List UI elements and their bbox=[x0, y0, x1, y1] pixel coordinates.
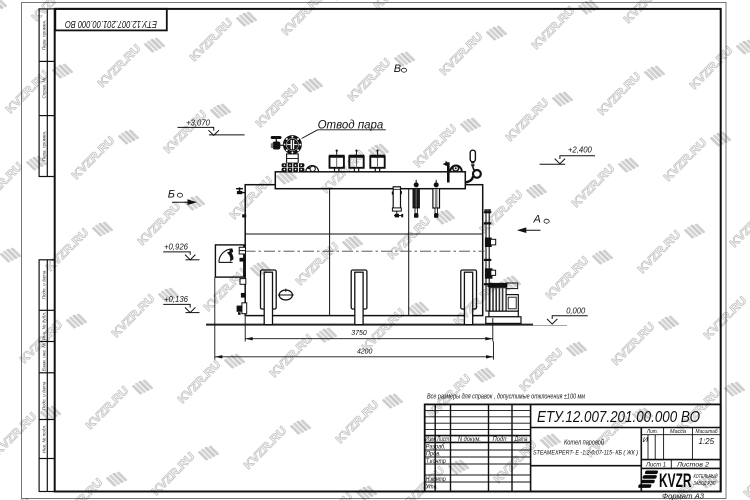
svg-text:В: В bbox=[394, 63, 401, 75]
svg-text:ЕТУ.12.007.201.00.000 ВО: ЕТУ.12.007.201.00.000 ВО bbox=[65, 18, 157, 29]
svg-text:Пров.: Пров. bbox=[426, 452, 441, 458]
svg-text:Лист 1: Лист 1 bbox=[645, 462, 666, 468]
svg-text:3750: 3750 bbox=[351, 328, 367, 337]
svg-text:+2,400: +2,400 bbox=[568, 145, 592, 155]
svg-text:1:25: 1:25 bbox=[699, 437, 715, 446]
svg-text:Масштаб: Масштаб bbox=[696, 429, 719, 435]
svg-text:Подп. и дата: Подп. и дата bbox=[42, 381, 47, 410]
svg-text:Подп: Подп bbox=[493, 437, 508, 443]
svg-text:Б: Б bbox=[168, 189, 175, 201]
svg-text:Перв. примен.: Перв. примен. bbox=[42, 131, 47, 162]
svg-text:Подп. и дата: Подп. и дата bbox=[42, 270, 47, 299]
svg-text:Инв. № подл.: Инв. № подл. bbox=[42, 425, 47, 454]
svg-text:Листов 2: Листов 2 bbox=[676, 462, 710, 468]
svg-text:N докум.: N докум. bbox=[458, 437, 481, 443]
svg-text:Изм: Изм bbox=[425, 437, 435, 443]
svg-text:Перв. примен.: Перв. примен. bbox=[42, 20, 47, 51]
svg-text:Лист: Лист bbox=[436, 437, 449, 443]
svg-text:+0,926: +0,926 bbox=[164, 242, 188, 252]
svg-text:И: И bbox=[643, 435, 649, 444]
svg-text:Разраб.: Разраб. bbox=[426, 445, 446, 451]
svg-text:А: А bbox=[533, 214, 541, 226]
svg-text:Дата: Дата bbox=[514, 437, 528, 443]
svg-text:0,000: 0,000 bbox=[566, 305, 585, 315]
svg-text:Т.контр: Т.контр bbox=[426, 459, 447, 465]
